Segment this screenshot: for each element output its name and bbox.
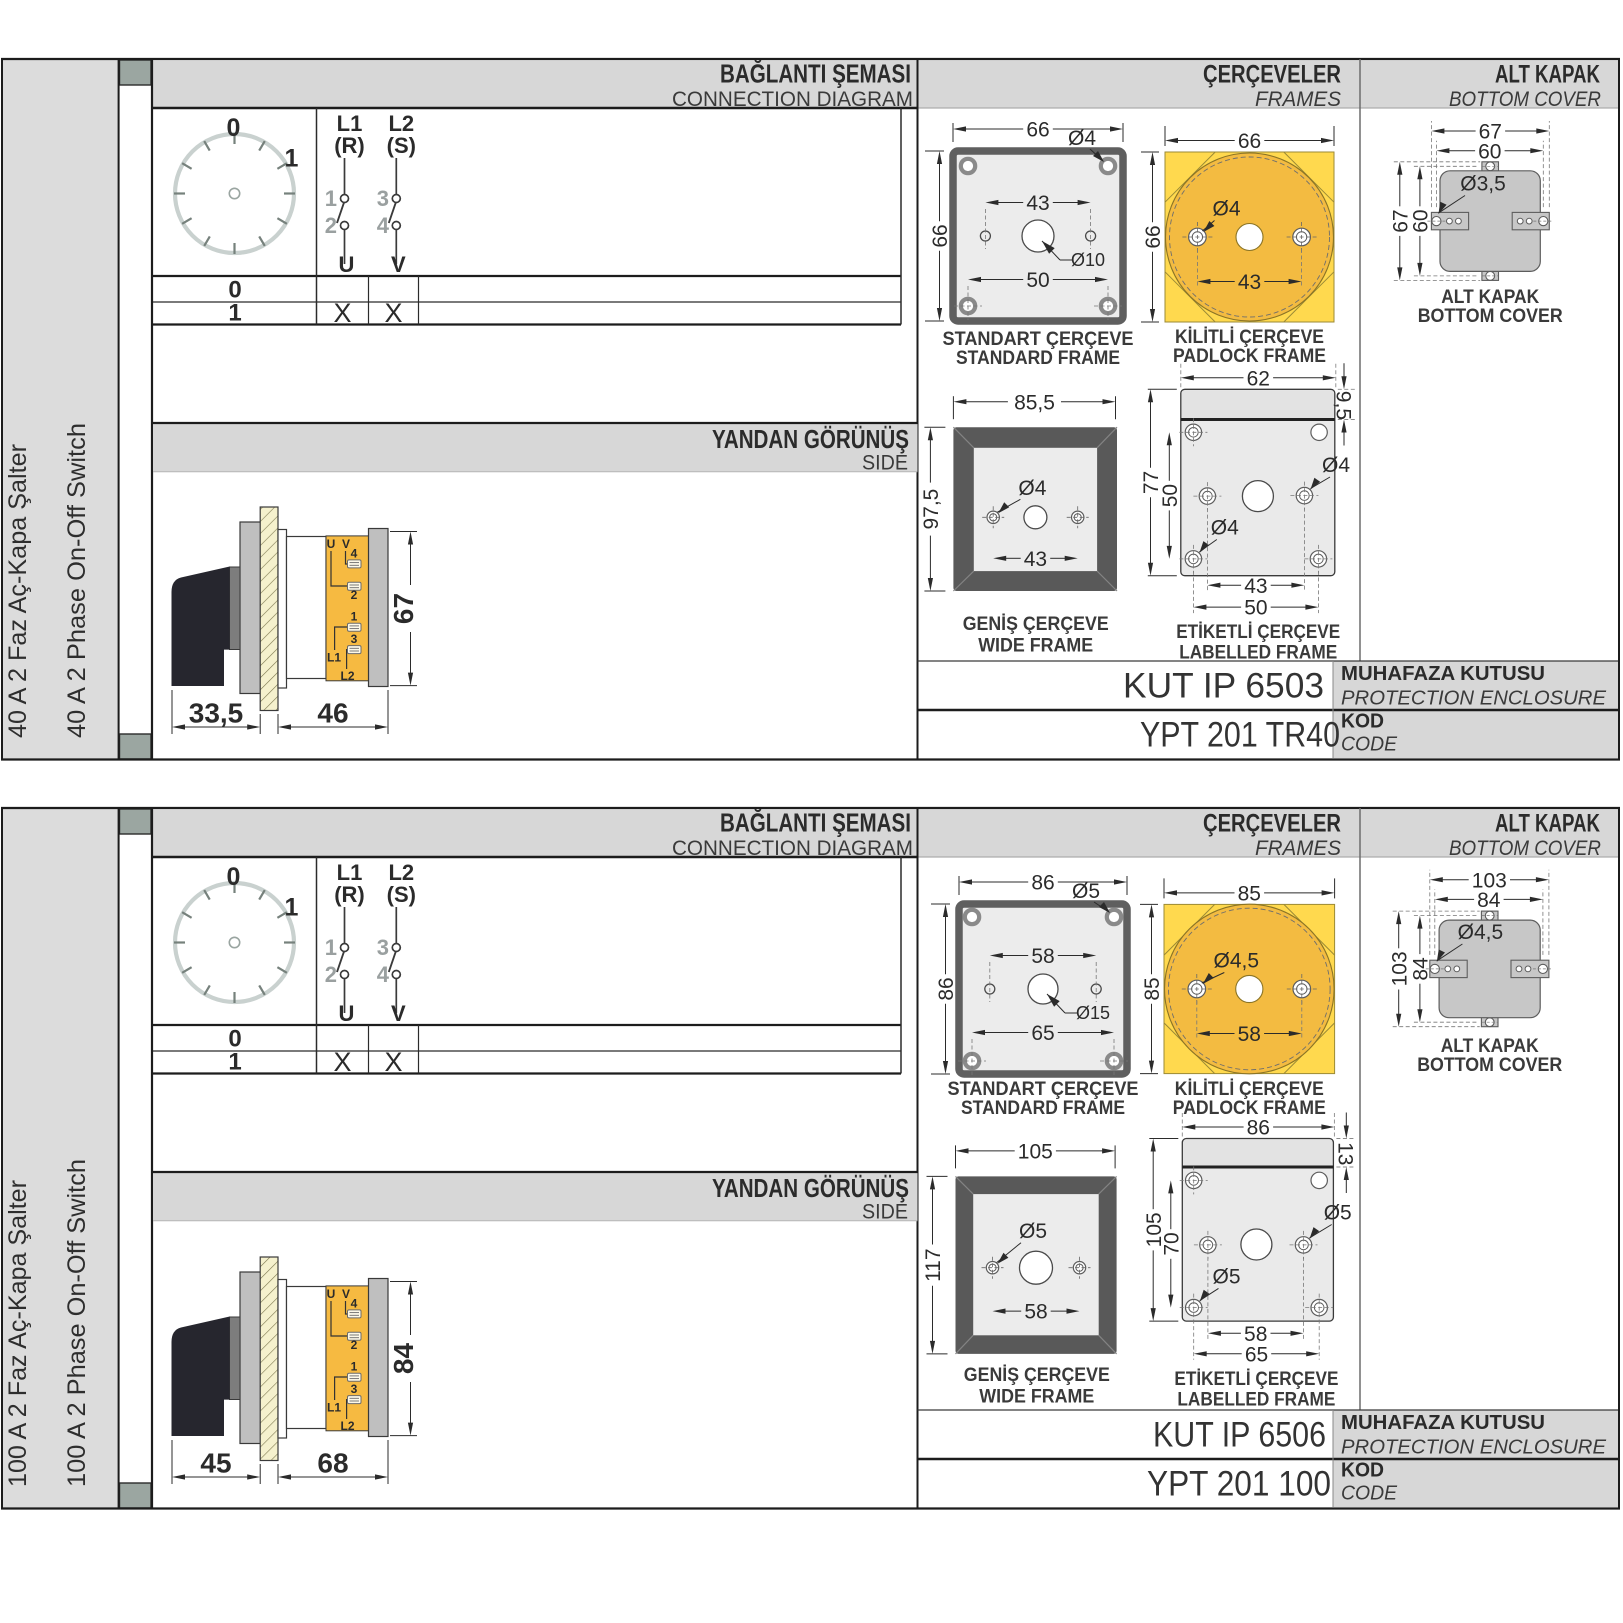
- svg-text:U: U: [327, 1287, 336, 1301]
- svg-text:GENİŞ ÇERÇEVE: GENİŞ ÇERÇEVE: [963, 614, 1109, 635]
- svg-text:(R): (R): [334, 882, 365, 907]
- svg-text:GENİŞ ÇERÇEVE: GENİŞ ÇERÇEVE: [964, 1365, 1110, 1386]
- svg-text:Ø10: Ø10: [1071, 250, 1105, 270]
- svg-text:62: 62: [1247, 367, 1270, 390]
- svg-text:CONNECTION DIAGRAM: CONNECTION DIAGRAM: [672, 87, 913, 111]
- svg-text:86: 86: [935, 977, 958, 1000]
- svg-text:Ø4: Ø4: [1018, 477, 1046, 500]
- svg-text:46: 46: [317, 698, 348, 729]
- svg-text:66: 66: [1238, 130, 1261, 153]
- svg-text:2: 2: [325, 213, 337, 238]
- svg-text:LABELLED FRAME: LABELLED FRAME: [1177, 1390, 1335, 1411]
- svg-text:FRAMES: FRAMES: [1255, 836, 1342, 860]
- svg-text:WIDE FRAME: WIDE FRAME: [979, 1387, 1094, 1408]
- svg-text:YPT 201 TR40: YPT 201 TR40: [1140, 716, 1340, 755]
- svg-text:U: U: [327, 537, 336, 551]
- svg-text:1: 1: [351, 1360, 358, 1374]
- svg-text:Ø4,5: Ø4,5: [1214, 950, 1260, 973]
- svg-text:33,5: 33,5: [189, 698, 244, 729]
- svg-text:65: 65: [1245, 1343, 1268, 1366]
- svg-text:YANDAN GÖRÜNÜŞ: YANDAN GÖRÜNÜŞ: [712, 424, 909, 454]
- svg-text:1: 1: [228, 1049, 241, 1076]
- svg-text:V: V: [342, 1287, 350, 1301]
- svg-text:YPT 201 100: YPT 201 100: [1147, 1465, 1331, 1504]
- svg-text:3: 3: [377, 186, 389, 211]
- svg-text:X: X: [333, 1047, 351, 1077]
- svg-text:1: 1: [228, 300, 241, 327]
- svg-text:ALT KAPAK: ALT KAPAK: [1441, 287, 1539, 308]
- svg-text:43: 43: [1026, 192, 1049, 215]
- svg-text:PADLOCK FRAME: PADLOCK FRAME: [1173, 346, 1326, 367]
- svg-text:KUT IP 6506: KUT IP 6506: [1153, 1416, 1326, 1455]
- svg-text:V: V: [342, 537, 350, 551]
- svg-text:BOTTOM COVER: BOTTOM COVER: [1418, 306, 1563, 327]
- svg-text:13: 13: [1334, 1142, 1357, 1165]
- svg-text:V: V: [391, 1001, 406, 1026]
- svg-text:MUHAFAZA KUTUSU: MUHAFAZA KUTUSU: [1341, 662, 1545, 685]
- svg-text:STANDARD FRAME: STANDARD FRAME: [956, 348, 1120, 369]
- svg-text:(S): (S): [387, 882, 416, 907]
- svg-text:4: 4: [377, 962, 390, 987]
- svg-text:BOTTOM COVER: BOTTOM COVER: [1417, 1055, 1562, 1076]
- svg-text:40 A 2 Phase On-Off Switch: 40 A 2 Phase On-Off Switch: [63, 423, 91, 738]
- svg-text:45: 45: [200, 1448, 231, 1479]
- svg-text:43: 43: [1024, 548, 1047, 571]
- svg-text:50: 50: [1244, 597, 1267, 620]
- svg-text:(S): (S): [387, 133, 416, 158]
- svg-text:1: 1: [325, 935, 337, 960]
- svg-text:66: 66: [1142, 225, 1165, 248]
- svg-text:50: 50: [1026, 269, 1049, 292]
- svg-text:STANDART ÇERÇEVE: STANDART ÇERÇEVE: [948, 1079, 1139, 1100]
- svg-text:Ø5: Ø5: [1324, 1202, 1352, 1225]
- svg-text:65: 65: [1031, 1022, 1054, 1045]
- svg-text:86: 86: [1247, 1117, 1270, 1140]
- svg-text:X: X: [333, 298, 351, 328]
- svg-text:0: 0: [227, 863, 241, 891]
- svg-text:0: 0: [227, 114, 241, 142]
- svg-text:BAĞLANTI ŞEMASI: BAĞLANTI ŞEMASI: [720, 59, 911, 89]
- svg-text:Ø4: Ø4: [1322, 454, 1350, 477]
- svg-text:KİLİTLİ ÇERÇEVE: KİLİTLİ ÇERÇEVE: [1175, 327, 1324, 348]
- svg-text:L1: L1: [327, 651, 341, 665]
- svg-text:ALT KAPAK: ALT KAPAK: [1495, 61, 1600, 89]
- svg-text:9,5: 9,5: [1331, 391, 1354, 420]
- svg-text:FRAMES: FRAMES: [1255, 87, 1342, 111]
- svg-text:1: 1: [325, 186, 337, 211]
- svg-text:KOD: KOD: [1341, 710, 1384, 733]
- svg-text:Ø5: Ø5: [1019, 1220, 1047, 1243]
- svg-text:SIDE: SIDE: [862, 451, 908, 475]
- svg-text:U: U: [339, 1001, 355, 1026]
- svg-text:4: 4: [351, 546, 358, 560]
- svg-text:58: 58: [1031, 945, 1054, 968]
- svg-text:103: 103: [1388, 951, 1411, 986]
- svg-text:ALT KAPAK: ALT KAPAK: [1495, 810, 1600, 838]
- svg-text:105: 105: [1018, 1141, 1053, 1164]
- svg-text:Ø4: Ø4: [1068, 127, 1096, 150]
- svg-text:60: 60: [1410, 209, 1433, 232]
- svg-text:58: 58: [1024, 1301, 1047, 1324]
- svg-text:84: 84: [1477, 889, 1501, 912]
- svg-text:2: 2: [351, 588, 358, 602]
- svg-text:L2: L2: [340, 669, 354, 683]
- svg-text:Ø15: Ø15: [1076, 1003, 1110, 1023]
- svg-text:100 A 2 Faz Aç-Kapa Şalter: 100 A 2 Faz Aç-Kapa Şalter: [4, 1180, 32, 1487]
- svg-text:84: 84: [1410, 957, 1433, 981]
- svg-text:66: 66: [929, 224, 952, 247]
- svg-text:ÇERÇEVELER: ÇERÇEVELER: [1203, 61, 1341, 89]
- svg-text:70: 70: [1160, 1232, 1183, 1255]
- svg-text:CONNECTION DIAGRAM: CONNECTION DIAGRAM: [672, 836, 913, 860]
- svg-text:ALT KAPAK: ALT KAPAK: [1441, 1036, 1539, 1057]
- svg-text:STANDART ÇERÇEVE: STANDART ÇERÇEVE: [943, 329, 1134, 350]
- svg-text:50: 50: [1159, 484, 1182, 507]
- svg-text:X: X: [384, 1047, 402, 1077]
- svg-text:PROTECTION ENCLOSURE: PROTECTION ENCLOSURE: [1341, 687, 1606, 710]
- svg-text:(R): (R): [334, 133, 365, 158]
- svg-text:86: 86: [1031, 872, 1054, 895]
- svg-text:66: 66: [1026, 119, 1049, 142]
- svg-text:2: 2: [351, 1338, 358, 1352]
- svg-text:100 A 2 Phase On-Off Switch: 100 A 2 Phase On-Off Switch: [63, 1159, 91, 1487]
- svg-text:WIDE FRAME: WIDE FRAME: [978, 636, 1093, 657]
- svg-text:Ø4: Ø4: [1211, 517, 1239, 540]
- svg-text:Ø5: Ø5: [1212, 1265, 1240, 1288]
- svg-text:KUT IP 6503: KUT IP 6503: [1123, 667, 1324, 706]
- svg-text:43: 43: [1244, 575, 1267, 598]
- svg-text:40 A 2 Faz Aç-Kapa Şalter: 40 A 2 Faz Aç-Kapa Şalter: [4, 444, 32, 738]
- svg-text:4: 4: [351, 1296, 358, 1310]
- svg-text:1: 1: [285, 894, 299, 922]
- svg-text:Ø3,5: Ø3,5: [1460, 173, 1506, 196]
- svg-text:LABELLED FRAME: LABELLED FRAME: [1179, 643, 1337, 664]
- svg-text:Ø5: Ø5: [1072, 880, 1100, 903]
- svg-text:2: 2: [325, 962, 337, 987]
- svg-text:SIDE: SIDE: [862, 1200, 908, 1224]
- svg-text:3: 3: [377, 935, 389, 960]
- svg-text:PROTECTION ENCLOSURE: PROTECTION ENCLOSURE: [1341, 1436, 1606, 1459]
- svg-text:MUHAFAZA KUTUSU: MUHAFAZA KUTUSU: [1341, 1411, 1545, 1434]
- svg-text:STANDARD FRAME: STANDARD FRAME: [961, 1098, 1125, 1119]
- svg-text:L2: L2: [340, 1419, 354, 1433]
- svg-text:3: 3: [351, 1382, 358, 1396]
- svg-text:43: 43: [1238, 271, 1261, 294]
- svg-text:BOTTOM COVER: BOTTOM COVER: [1449, 836, 1601, 860]
- svg-text:68: 68: [317, 1448, 348, 1479]
- svg-text:1: 1: [285, 145, 299, 173]
- svg-text:58: 58: [1238, 1023, 1261, 1046]
- svg-text:V: V: [391, 252, 406, 277]
- svg-text:CODE: CODE: [1341, 733, 1397, 756]
- svg-text:BAĞLANTI ŞEMASI: BAĞLANTI ŞEMASI: [720, 808, 911, 838]
- svg-text:1: 1: [351, 610, 358, 624]
- svg-text:85: 85: [1141, 977, 1164, 1000]
- svg-text:Ø4,5: Ø4,5: [1458, 921, 1504, 944]
- svg-text:67: 67: [388, 593, 419, 624]
- svg-text:85,5: 85,5: [1014, 391, 1055, 414]
- svg-text:84: 84: [388, 1343, 419, 1375]
- svg-text:117: 117: [922, 1248, 945, 1281]
- svg-text:85: 85: [1238, 883, 1261, 906]
- svg-text:97,5: 97,5: [920, 489, 943, 530]
- svg-text:X: X: [384, 298, 402, 328]
- svg-text:YANDAN GÖRÜNÜŞ: YANDAN GÖRÜNÜŞ: [712, 1173, 909, 1203]
- svg-text:KOD: KOD: [1341, 1459, 1384, 1482]
- svg-text:Ø4: Ø4: [1212, 198, 1240, 221]
- svg-text:BOTTOM COVER: BOTTOM COVER: [1449, 87, 1601, 111]
- svg-text:4: 4: [377, 213, 390, 238]
- svg-text:CODE: CODE: [1341, 1482, 1397, 1505]
- svg-text:3: 3: [351, 632, 358, 646]
- svg-text:KİLİTLİ ÇERÇEVE: KİLİTLİ ÇERÇEVE: [1175, 1079, 1324, 1100]
- svg-text:U: U: [339, 252, 355, 277]
- svg-text:ETİKETLİ ÇERÇEVE: ETİKETLİ ÇERÇEVE: [1174, 1369, 1338, 1390]
- svg-text:L1: L1: [327, 1401, 341, 1415]
- svg-text:60: 60: [1478, 140, 1501, 163]
- svg-text:ETİKETLİ ÇERÇEVE: ETİKETLİ ÇERÇEVE: [1176, 622, 1340, 643]
- svg-text:ÇERÇEVELER: ÇERÇEVELER: [1203, 810, 1341, 838]
